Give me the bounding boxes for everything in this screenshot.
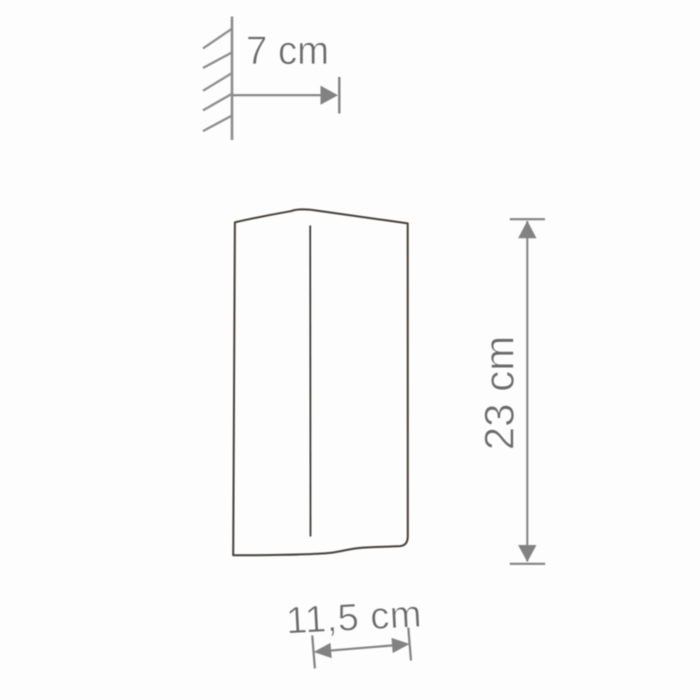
svg-text:11,5 cm: 11,5 cm [285, 593, 423, 642]
svg-text:7 cm: 7 cm [246, 29, 329, 73]
svg-text:23 cm: 23 cm [476, 336, 523, 450]
